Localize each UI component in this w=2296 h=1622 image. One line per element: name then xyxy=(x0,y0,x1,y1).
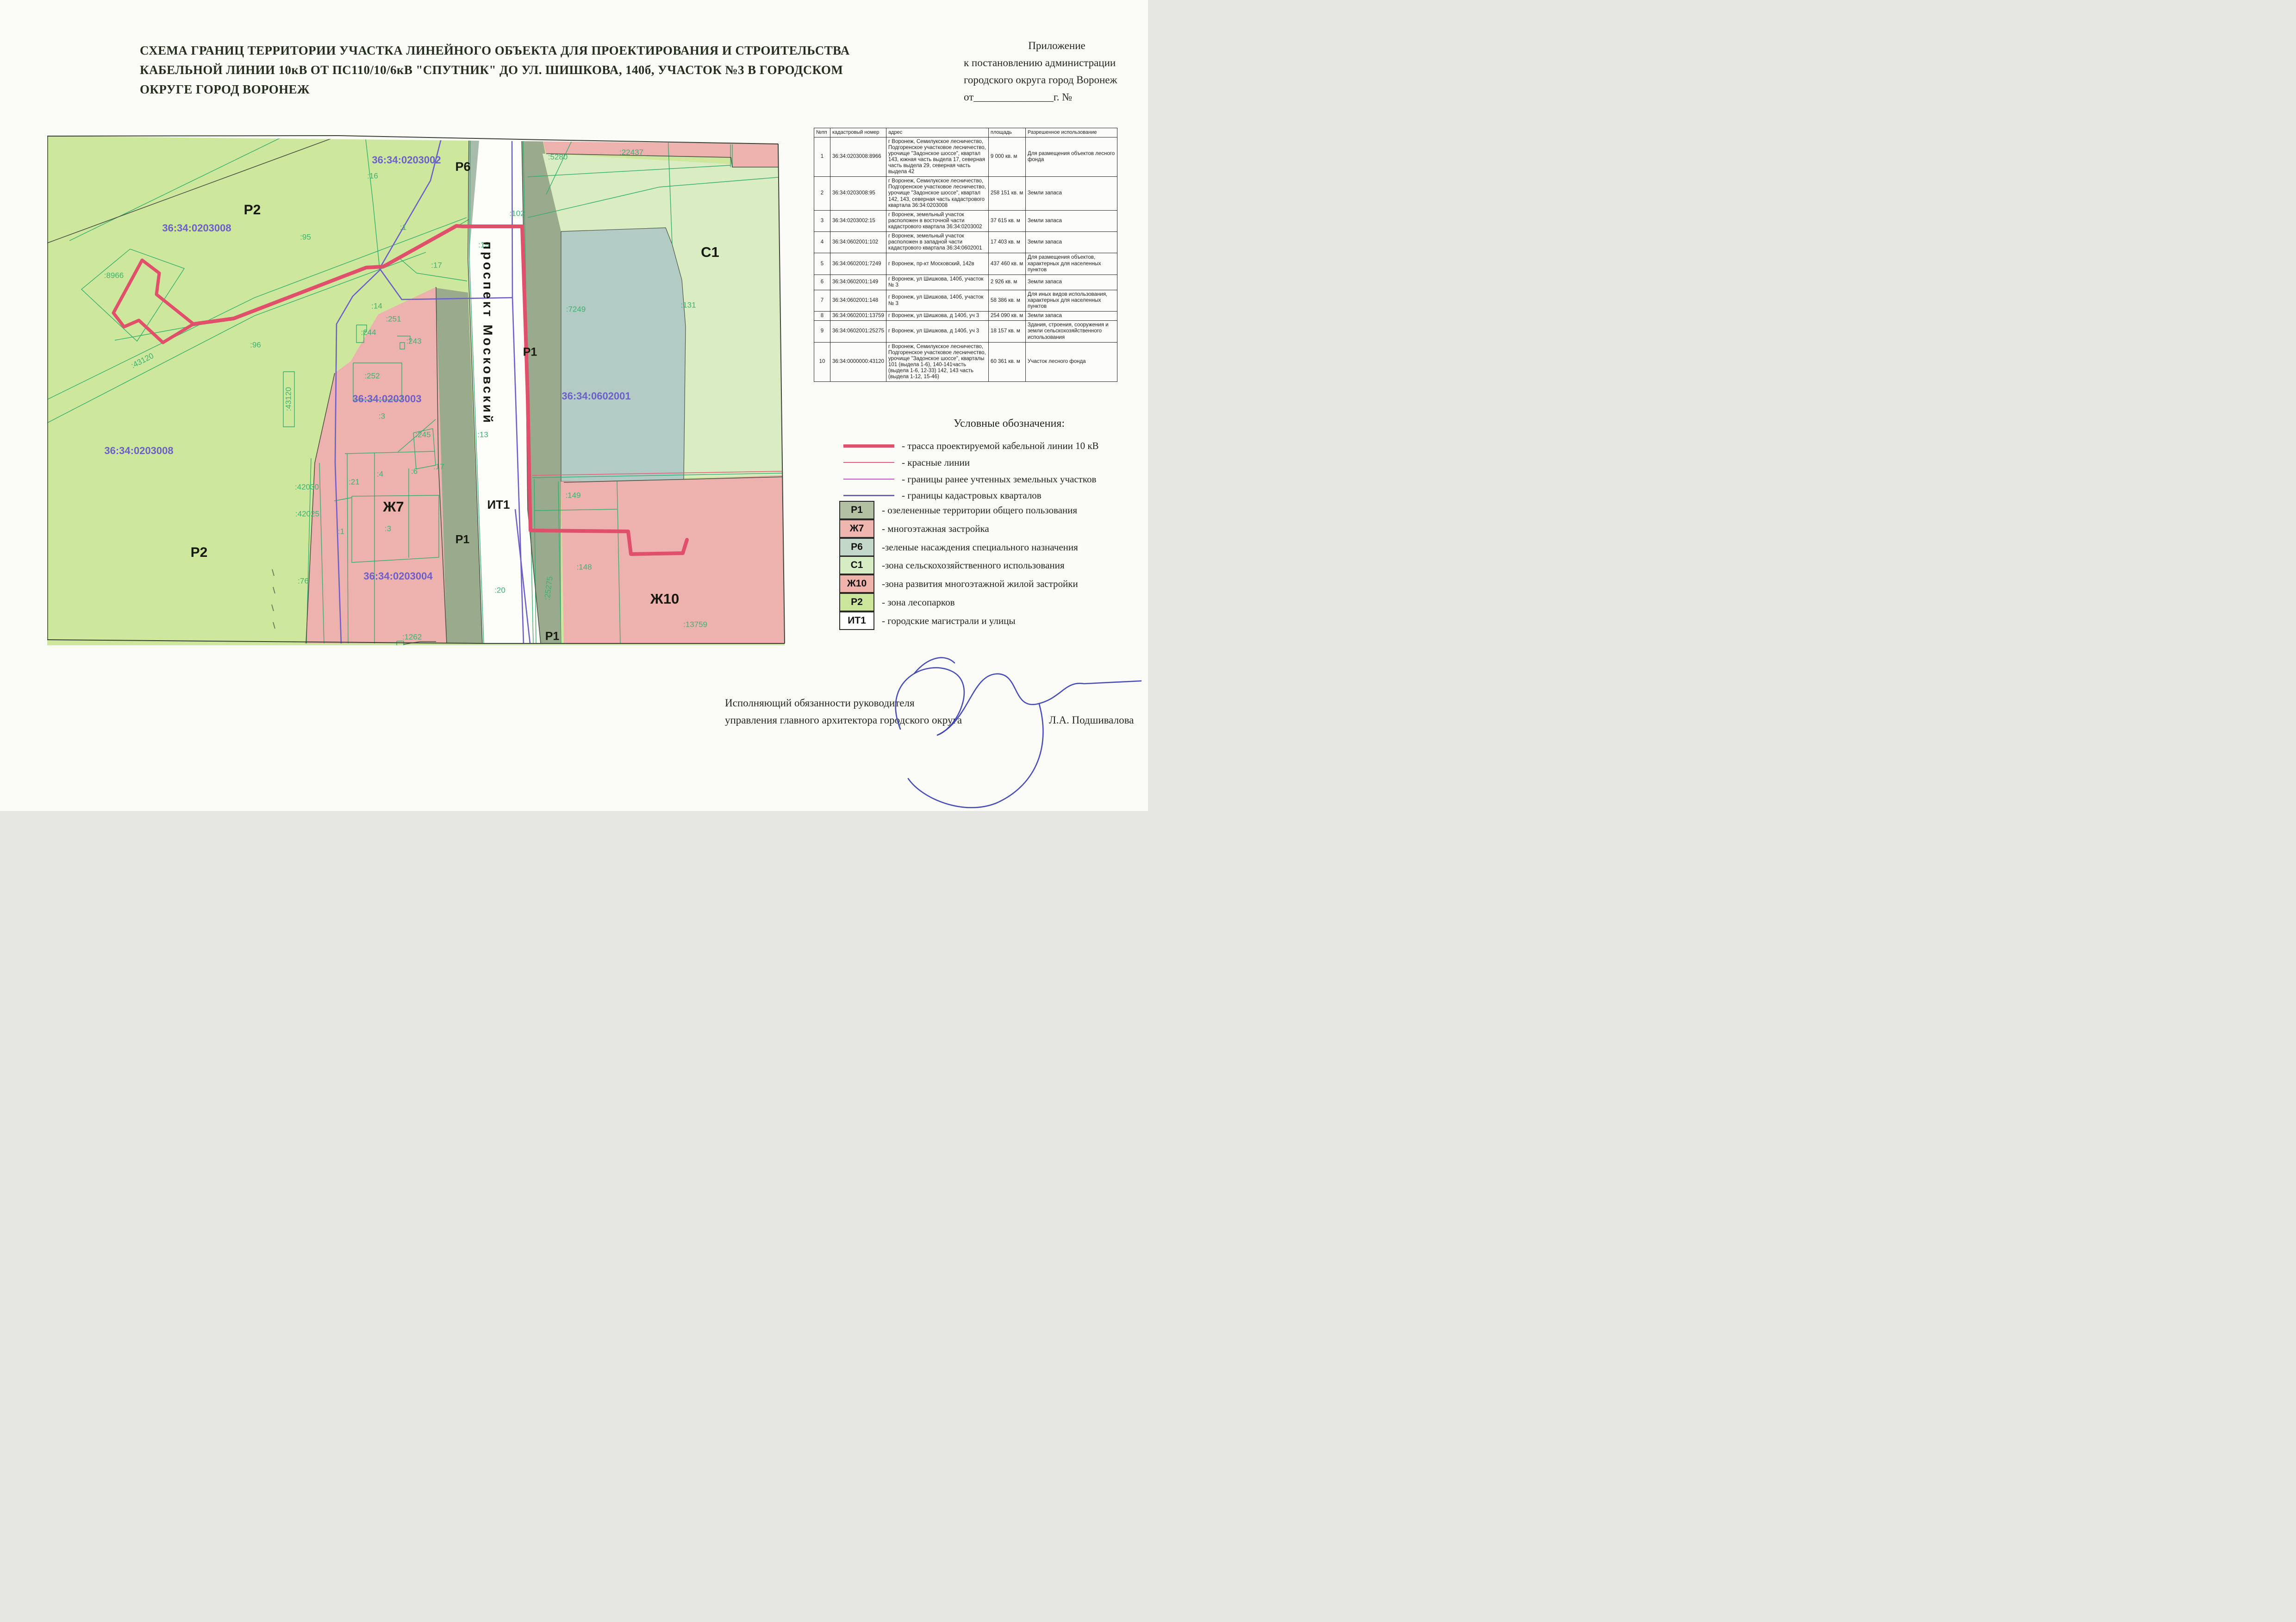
table-cell: Для размещения объектов лесного фонда xyxy=(1025,137,1117,177)
title-line: КАБЕЛЬНОЙ ЛИНИИ 10кВ ОТ ПС110/10/6кВ "СП… xyxy=(140,60,853,80)
table-cell: г Воронеж, ул Шишкова, 140б, участок № 3 xyxy=(886,274,988,290)
table-cell: Земли запаса xyxy=(1025,312,1117,321)
table-cell: 3 xyxy=(814,210,830,231)
parcel-number-label: :149 xyxy=(565,491,580,499)
table-cell: 36:34:0602001:13759 xyxy=(830,312,886,321)
parcel-number-label: :244 xyxy=(361,328,376,337)
legend-line-swatch xyxy=(843,495,894,496)
quarter-number-label: 36:34:0203004 xyxy=(363,570,433,582)
table-cell: 58 386 кв. м xyxy=(988,290,1025,311)
parcel-number-label: :4 xyxy=(377,469,383,478)
quarter-number-label: 36:34:0203008 xyxy=(104,445,173,456)
parcel-number-label: :17 xyxy=(433,462,444,471)
legend-zone-label: -зеленые насаждения специального назначе… xyxy=(882,542,1078,553)
zone-code-label: Р1 xyxy=(455,533,470,546)
signature-stroke xyxy=(896,668,964,735)
legend-line-item: - границы ранее учтенных земельных участ… xyxy=(843,473,1096,485)
parcel-number-label: :102 xyxy=(509,209,524,218)
parcel-number-label: :16 xyxy=(367,171,378,180)
legend-zone-label: - зона лесопарков xyxy=(882,597,955,608)
table-cell: 254 090 кв. м xyxy=(988,312,1025,321)
table-row: 536:34:0602001:7249г Воронеж, пр-кт Моск… xyxy=(814,253,1117,274)
parcel-number-label: :42030 xyxy=(295,482,319,491)
legend-zone-swatch: Р1 xyxy=(839,501,874,519)
legend-zone-swatch: Р2 xyxy=(839,593,874,611)
table-cell: 36:34:0000000:43120 xyxy=(830,342,886,382)
appendix-line: Приложение xyxy=(964,37,1148,54)
page-title: СХЕМА ГРАНИЦ ТЕРРИТОРИИ УЧАСТКА ЛИНЕЙНОГ… xyxy=(140,41,853,99)
legend-line-label: - границы ранее учтенных земельных участ… xyxy=(902,474,1096,485)
table-cell: 60 361 кв. м xyxy=(988,342,1025,382)
legend-zone-item: Р2- зона лесопарков xyxy=(839,593,955,611)
parcel-number-label: :22437 xyxy=(619,148,643,156)
quarter-number-label: 36:34:0203003 xyxy=(352,393,421,405)
zone-code-label: ИТ1 xyxy=(487,498,510,512)
table-cell: 36:34:0602001:102 xyxy=(830,232,886,253)
parcel-number-label: :8966 xyxy=(104,271,124,280)
table-header-cell: адрес xyxy=(886,128,988,137)
legend-line-label: - красные линии xyxy=(902,457,970,468)
table-cell: г Воронеж, Семилукское лесничество, Подг… xyxy=(886,342,988,382)
parcel-number-label: :21 xyxy=(349,477,360,486)
table-row: 436:34:0602001:102г Воронеж, земельный у… xyxy=(814,232,1117,253)
table-cell: г Воронеж, ул Шишкова, д 140б, уч 3 xyxy=(886,321,988,342)
legend-zone-swatch: Ж10 xyxy=(839,574,874,593)
parcel-number-label: :42025 xyxy=(295,509,319,518)
parcel-number-label: :3 xyxy=(385,524,391,533)
legend-line-item: - трасса проектируемой кабельной линии 1… xyxy=(843,440,1099,452)
legend-zone-swatch: С1 xyxy=(839,556,874,574)
table-cell: 37 615 кв. м xyxy=(988,210,1025,231)
table-cell: г Воронеж, ул Шишкова, д 140б, уч 3 xyxy=(886,312,988,321)
zone-code-label: Р6 xyxy=(455,160,470,174)
table-cell: Земли запаса xyxy=(1025,232,1117,253)
table-cell: 2 xyxy=(814,177,830,211)
table-header-cell: №пп xyxy=(814,128,830,137)
signature xyxy=(870,648,1148,811)
table-cell: 36:34:0203008:95 xyxy=(830,177,886,211)
legend-zone-item: Р6-зеленые насаждения специального назна… xyxy=(839,538,1078,556)
zone-code-label: Р1 xyxy=(545,630,560,643)
parcel-number-label: :96 xyxy=(250,340,261,349)
table-header-cell: площадь xyxy=(988,128,1025,137)
legend-zone-item: Ж10-зона развития многоэтажной жилой зас… xyxy=(839,574,1078,593)
table-cell: Земли запаса xyxy=(1025,210,1117,231)
parcel-number-label: :20 xyxy=(494,586,505,594)
table-cell: 36:34:0602001:25275 xyxy=(830,321,886,342)
parcel-number-label: :131 xyxy=(680,300,696,309)
zone-code-label: Р2 xyxy=(244,202,261,218)
table-cell: 7 xyxy=(814,290,830,311)
parcel-number-label: :5280 xyxy=(548,152,568,161)
table-cell: г Воронеж, ул Шишкова, 140б, участок № 3 xyxy=(886,290,988,311)
table-row: 336:34:0203002:15г Воронеж, земельный уч… xyxy=(814,210,1117,231)
title-line: ОКРУГЕ ГОРОД ВОРОНЕЖ xyxy=(140,80,853,99)
signature-stroke xyxy=(908,704,1043,808)
legend-line-label: - границы кадастровых кварталов xyxy=(902,490,1042,501)
table-cell: Земли запаса xyxy=(1025,177,1117,211)
table-cell: г Воронеж, Семилукское лесничество, Подг… xyxy=(886,137,988,177)
parcel-number-label: :243 xyxy=(406,337,421,345)
table-row: 636:34:0602001:149г Воронеж, ул Шишкова,… xyxy=(814,274,1117,290)
legend-zone-item: ИТ1- городские магистрали и улицы xyxy=(839,611,1015,630)
table-cell: 4 xyxy=(814,232,830,253)
table-row: 936:34:0602001:25275г Воронеж, ул Шишков… xyxy=(814,321,1117,342)
table-cell: 36:34:0602001:7249 xyxy=(830,253,886,274)
parcel-table: №ппкадастровый номерадресплощадьРазрешен… xyxy=(814,128,1117,382)
table-cell: Земли запаса xyxy=(1025,274,1117,290)
legend-line-label: - трасса проектируемой кабельной линии 1… xyxy=(902,440,1099,452)
quarter-number-label: 36:34:0203002 xyxy=(372,154,441,166)
parcel-number-label: :13 xyxy=(477,430,488,439)
table-cell: Участок лесного фонда xyxy=(1025,342,1117,382)
legend-zone-swatch: Р6 xyxy=(839,538,874,556)
title-line: СХЕМА ГРАНИЦ ТЕРРИТОРИИ УЧАСТКА ЛИНЕЙНОГ… xyxy=(140,41,853,60)
appendix-line: от_______________г. № xyxy=(964,88,1148,106)
legend-line-swatch xyxy=(843,479,894,480)
parcel-number-label: :148 xyxy=(576,562,592,571)
legend-zone-label: - озелененные территории общего пользова… xyxy=(882,505,1077,516)
table-cell: Для иных видов использования, характерны… xyxy=(1025,290,1117,311)
legend-zone-swatch: ИТ1 xyxy=(839,611,874,630)
table-cell: 2 926 кв. м xyxy=(988,274,1025,290)
parcel-number-label: :14 xyxy=(371,301,382,310)
quarter-number-label: 36:34:0203008 xyxy=(162,222,231,234)
legend-zone-label: -зона сельскохозяйственного использовани… xyxy=(882,560,1065,571)
parcel-number-label: :251 xyxy=(386,314,401,323)
zone-code-label: Ж10 xyxy=(650,591,680,607)
table-cell: 36:34:0203002:15 xyxy=(830,210,886,231)
table-cell: 9 xyxy=(814,321,830,342)
table-cell: 36:34:0203008:8966 xyxy=(830,137,886,177)
table-cell: 437 460 кв. м xyxy=(988,253,1025,274)
table-row: 1036:34:0000000:43120г Воронеж, Семилукс… xyxy=(814,342,1117,382)
legend-zone-item: Р1- озелененные территории общего пользо… xyxy=(839,501,1077,519)
table-cell: 36:34:0602001:149 xyxy=(830,274,886,290)
parcel-number-label: :3 xyxy=(379,412,385,420)
road-name-label: проспект Московский xyxy=(481,242,495,425)
table-cell: г Воронеж, пр-кт Московский, 142в xyxy=(886,253,988,274)
table-cell: 10 xyxy=(814,342,830,382)
table-header-cell: кадастровый номер xyxy=(830,128,886,137)
document-page: СХЕМА ГРАНИЦ ТЕРРИТОРИИ УЧАСТКА ЛИНЕЙНОГ… xyxy=(0,0,1148,811)
parcel-number-label: :6 xyxy=(411,467,418,475)
table-cell: г Воронеж, Семилукское лесничество, Подг… xyxy=(886,177,988,211)
appendix-block: Приложение к постановлению администрации… xyxy=(964,37,1148,106)
parcel-number-label: :43120 xyxy=(284,387,293,411)
table-cell: 9 000 кв. м xyxy=(988,137,1025,177)
legend-zone-item: С1-зона сельскохозяйственного использова… xyxy=(839,556,1065,574)
legend-line-item: - границы кадастровых кварталов xyxy=(843,489,1042,501)
map-zones xyxy=(47,133,787,645)
zone-code-label: Р1 xyxy=(523,346,537,359)
legend-zone-swatch: Ж7 xyxy=(839,519,874,538)
parcel-number-label: :17 xyxy=(431,261,442,269)
table-cell: 17 403 кв. м xyxy=(988,232,1025,253)
table-row: 236:34:0203008:95г Воронеж, Семилукское … xyxy=(814,177,1117,211)
parcel-number-label: :1 xyxy=(338,527,344,536)
parcel-number-label: :1 xyxy=(400,223,406,231)
table-cell: Здания, строения, сооружения и земли сел… xyxy=(1025,321,1117,342)
parcel-number-label: :13759 xyxy=(683,620,707,629)
table-cell: 6 xyxy=(814,274,830,290)
table-row: 736:34:0602001:148г Воронеж, ул Шишкова,… xyxy=(814,290,1117,311)
table-cell: 258 151 кв. м xyxy=(988,177,1025,211)
table-cell: Для размещения объектов, характерных для… xyxy=(1025,253,1117,274)
table-cell: 1 xyxy=(814,137,830,177)
zone-code-label: Р2 xyxy=(191,545,208,560)
table-cell: г Воронеж, земельный участок расположен … xyxy=(886,210,988,231)
legend-zone-label: - городские магистрали и улицы xyxy=(882,615,1015,627)
legend-zone-item: Ж7- многоэтажная застройка xyxy=(839,519,989,538)
legend-title: Условные обозначения: xyxy=(935,418,1083,430)
zone-code-label: Ж7 xyxy=(382,499,404,515)
table-cell: 18 157 кв. м xyxy=(988,321,1025,342)
table-row: 836:34:0602001:13759г Воронеж, ул Шишков… xyxy=(814,312,1117,321)
legend-zone-label: - многоэтажная застройка xyxy=(882,523,989,535)
appendix-line: городского округа город Воронеж xyxy=(964,71,1148,88)
table-cell: 36:34:0602001:148 xyxy=(830,290,886,311)
legend-line-swatch xyxy=(843,462,894,463)
legend-line-item: - красные линии xyxy=(843,456,970,468)
legend-line-swatch xyxy=(843,444,894,448)
table-row: 136:34:0203008:8966г Воронеж, Семилукско… xyxy=(814,137,1117,177)
table-cell: г Воронеж, земельный участок расположен … xyxy=(886,232,988,253)
cadastral-map: 36:34:020300236:34:020300836:34:02030033… xyxy=(47,133,788,645)
table-cell: 8 xyxy=(814,312,830,321)
zone-code-label: С1 xyxy=(701,244,719,260)
table-header-cell: Разрешенное использование xyxy=(1025,128,1117,137)
parcel-number-label: :245 xyxy=(415,430,430,439)
parcel-number-label: :76 xyxy=(298,576,309,585)
parcel-number-label: :7249 xyxy=(566,305,586,313)
parcel-number-label: :1262 xyxy=(402,632,422,641)
legend-zone-label: -зона развития многоэтажной жилой застро… xyxy=(882,578,1078,590)
parcel-number-label: :95 xyxy=(300,232,311,241)
parcel-number-label: :252 xyxy=(364,371,380,380)
appendix-line: к постановлению администрации xyxy=(964,54,1148,71)
quarter-number-label: 36:34:0602001 xyxy=(562,390,630,402)
table-cell: 5 xyxy=(814,253,830,274)
